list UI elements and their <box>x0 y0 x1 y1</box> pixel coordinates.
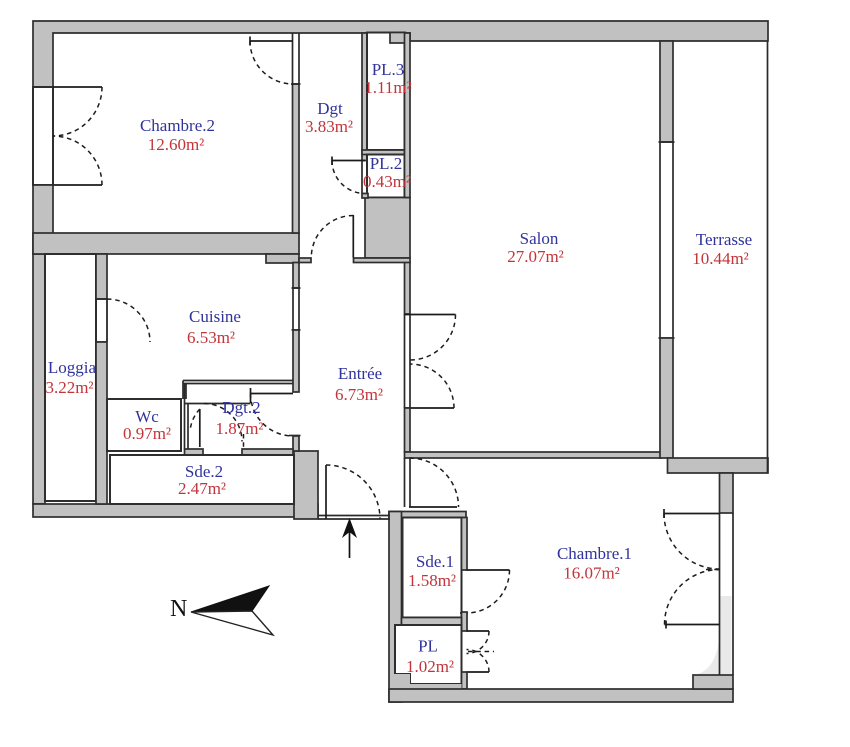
svg-text:Terrasse: Terrasse <box>696 230 752 249</box>
svg-text:3.83m²: 3.83m² <box>305 117 353 136</box>
svg-text:Salon: Salon <box>520 229 559 248</box>
svg-text:Dgt.2: Dgt.2 <box>222 398 260 417</box>
svg-text:0.97m²: 0.97m² <box>123 424 171 443</box>
svg-text:Chambre.2: Chambre.2 <box>140 116 215 135</box>
svg-text:3.22m²: 3.22m² <box>45 378 93 397</box>
svg-text:PL.2: PL.2 <box>370 154 403 173</box>
svg-text:Entrée: Entrée <box>338 364 382 383</box>
svg-text:6.73m²: 6.73m² <box>335 385 383 404</box>
svg-text:27.07m²: 27.07m² <box>507 247 564 266</box>
svg-text:12.60m²: 12.60m² <box>148 135 205 154</box>
svg-text:0.43m²: 0.43m² <box>363 172 411 191</box>
svg-text:6.53m²: 6.53m² <box>187 328 235 347</box>
svg-text:PL: PL <box>418 637 438 656</box>
svg-text:PL.3: PL.3 <box>372 60 405 79</box>
svg-text:10.44m²: 10.44m² <box>692 249 749 268</box>
svg-text:N: N <box>170 596 187 622</box>
svg-text:Dgt: Dgt <box>317 99 343 118</box>
svg-text:Cuisine: Cuisine <box>189 307 241 326</box>
svg-text:16.07m²: 16.07m² <box>563 564 620 583</box>
svg-text:Sde.1: Sde.1 <box>416 552 454 571</box>
svg-text:2.47m²: 2.47m² <box>178 479 226 498</box>
svg-text:1.02m²: 1.02m² <box>406 657 454 676</box>
svg-text:Loggia: Loggia <box>48 358 97 377</box>
svg-text:1.87m²: 1.87m² <box>215 419 263 438</box>
svg-text:Chambre.1: Chambre.1 <box>557 544 632 563</box>
svg-text:1.11m²: 1.11m² <box>364 78 411 97</box>
svg-text:1.58m²: 1.58m² <box>408 571 456 590</box>
